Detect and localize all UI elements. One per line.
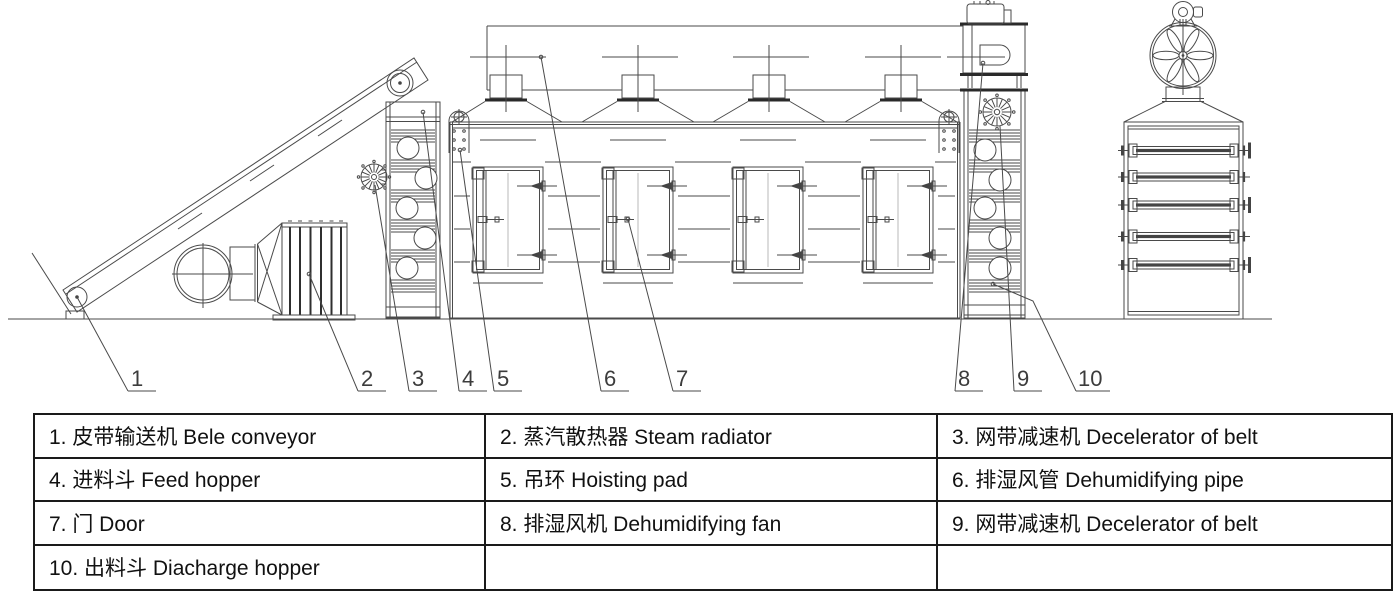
dehumidifying-pipe (470, 26, 1005, 90)
belt-decelerator-discharge (979, 94, 1015, 130)
callout-number-7: 7 (676, 368, 688, 390)
legend-cell-10: 10. 出料斗 Diacharge hopper (35, 546, 486, 590)
legend-cell-4: 4. 进料斗 Feed hopper (35, 459, 486, 503)
belt-decelerator-feed (357, 160, 390, 193)
legend-table: 1. 皮带输送机 Bele conveyor 2. 蒸汽散热器 Steam ra… (33, 413, 1393, 591)
callout-number-6: 6 (604, 368, 616, 390)
legend-cell-9: 9. 网带减速机 Decelerator of belt (938, 502, 1391, 546)
belt-rows (1118, 143, 1251, 274)
page: 1 2 3 4 5 6 7 8 9 10 1. 皮带输送机 Bele conve… (0, 0, 1400, 595)
roof-hoods (452, 102, 957, 123)
legend-cell-5: 5. 吊环 Hoisting pad (486, 459, 938, 503)
legend-cell-7: 7. 门 Door (35, 502, 486, 546)
door-2 (602, 167, 687, 273)
steam-radiator (273, 221, 355, 320)
feed-tower (386, 102, 440, 318)
exhaust-chimneys (485, 45, 922, 112)
callout-number-1: 1 (131, 368, 143, 390)
door-4 (862, 167, 947, 273)
end-view-motor (1169, 2, 1203, 27)
callout-number-10: 10 (1078, 368, 1102, 390)
hoisting-pads (449, 109, 959, 153)
circulation-blower (172, 223, 282, 315)
legend-cell-6: 6. 排湿风管 Dehumidifying pipe (938, 459, 1391, 503)
door-1 (472, 167, 557, 273)
legend-cell-8: 8. 排湿风机 Dehumidifying fan (486, 502, 938, 546)
callout-number-5: 5 (497, 368, 509, 390)
callout-number-4: 4 (462, 368, 474, 390)
end-view-fan (1150, 19, 1216, 95)
callout-number-2: 2 (361, 368, 373, 390)
legend-cell-11 (486, 546, 938, 590)
legend-cell-2: 2. 蒸汽散热器 Steam radiator (486, 415, 938, 459)
end-view (1118, 2, 1251, 320)
doors (472, 167, 947, 273)
door-3 (732, 167, 817, 273)
leader-lines (77, 55, 1110, 391)
legend-cell-1: 1. 皮带输送机 Bele conveyor (35, 415, 486, 459)
callout-number-3: 3 (412, 368, 424, 390)
legend-cell-12 (938, 546, 1391, 590)
dehumidifying-fan-unit (960, 1, 1028, 91)
callout-number-9: 9 (1017, 368, 1029, 390)
callout-number-8: 8 (958, 368, 970, 390)
legend-cell-3: 3. 网带减速机 Decelerator of belt (938, 415, 1391, 459)
